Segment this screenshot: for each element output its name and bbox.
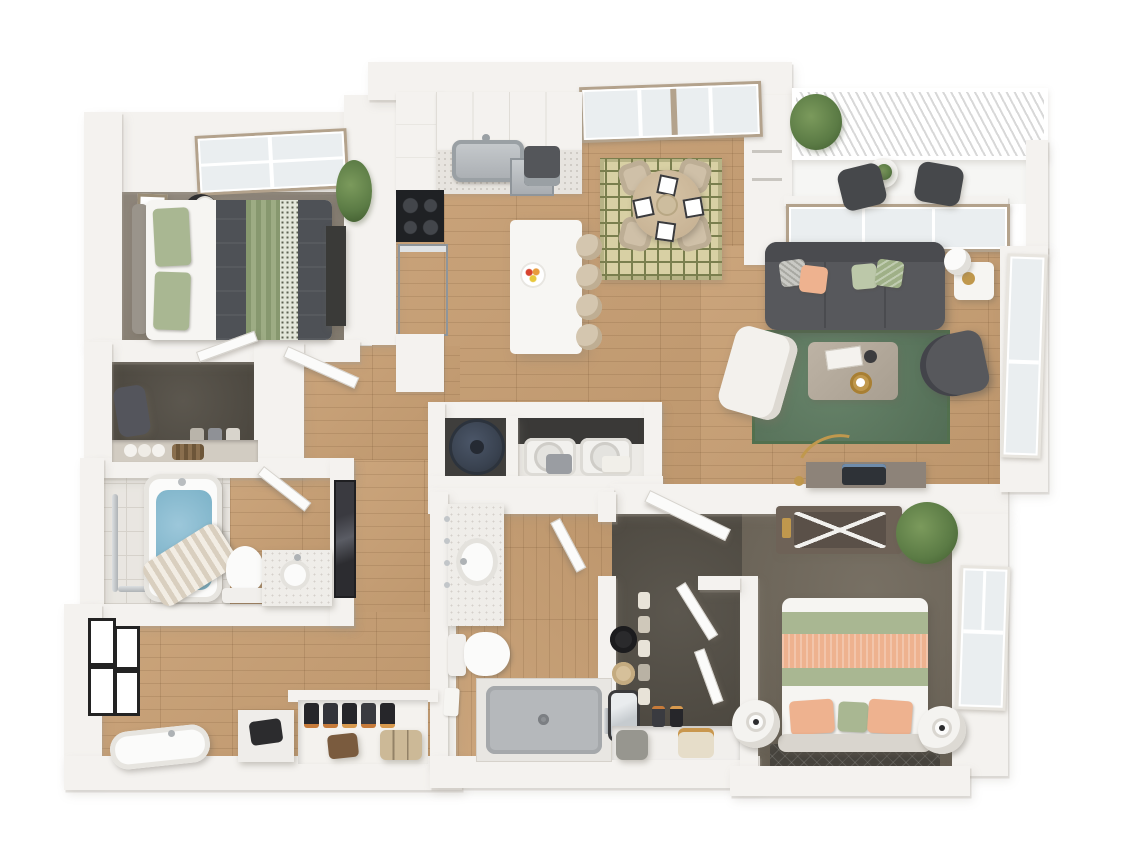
window-divider	[670, 89, 678, 135]
black-hat	[610, 626, 637, 653]
bedroom1-plant	[336, 160, 372, 222]
sofa-pillow-sage	[851, 263, 878, 290]
entry-suitcase	[380, 730, 422, 760]
place-setting-n	[656, 174, 679, 197]
toilet1-bowl	[226, 546, 264, 592]
gallery-frame-2	[114, 626, 140, 670]
toilet2-bowl	[464, 632, 510, 676]
bathroom1-west-wall	[80, 458, 104, 626]
bar-stool-4	[576, 324, 602, 350]
entry-leather-bag	[327, 732, 359, 759]
cabinet-seam-2	[752, 178, 782, 181]
bedroom2-south-wall	[730, 766, 970, 796]
bathroom2-west-wall	[430, 492, 448, 764]
closet2-north-stub	[698, 576, 740, 590]
coffee-maker	[524, 146, 560, 186]
bedroom2-window-glass	[959, 568, 1008, 707]
sofa-pillow-peach	[798, 264, 828, 294]
hanging-plant	[790, 94, 842, 150]
vanity2-faucet	[460, 558, 467, 565]
kitchen-island	[510, 220, 582, 354]
tan-hat	[612, 662, 635, 685]
entry-shoe-1	[304, 703, 319, 728]
water-heater-cap	[470, 440, 484, 454]
bar-stool-1	[576, 234, 602, 260]
gallery-frame-4	[114, 670, 140, 716]
living-east-window	[1000, 253, 1047, 458]
closet2-hamper	[616, 730, 648, 760]
floor-plan-3d	[0, 0, 1125, 844]
kitchen-window-glass	[582, 84, 760, 140]
closet2-shoe-e	[638, 688, 650, 705]
place-setting-w	[632, 196, 655, 219]
kitchen-window	[579, 81, 763, 143]
bedroom1-dresser	[326, 226, 346, 326]
wall-hook-2	[444, 538, 450, 544]
tub-faucet	[178, 478, 186, 486]
luggage-rack	[794, 512, 886, 548]
closet1-basket	[172, 444, 204, 460]
closet2-shoe-f	[652, 706, 665, 727]
window-mullion	[638, 90, 644, 136]
closet1-west-wall	[84, 342, 112, 472]
sofa-pillow-leaf	[874, 258, 904, 288]
kitchen-base-cabinet	[396, 334, 444, 392]
bathroom2-east-wall-a	[598, 492, 616, 522]
grab-bar-vertical	[112, 494, 118, 592]
bed2-peach-runner	[782, 634, 928, 668]
wall-hook-3	[444, 560, 450, 566]
vanity1-faucet	[294, 554, 301, 561]
gallery-frame-3	[88, 666, 116, 716]
vanity1-sink	[280, 560, 310, 590]
window-mullion	[1009, 359, 1039, 364]
entry-shoe-3	[342, 703, 357, 728]
closet2-shoe-b	[638, 616, 650, 633]
utility-top-wall	[428, 402, 662, 418]
fruit-plate	[520, 262, 546, 288]
bed2-sage-band-top	[782, 612, 928, 634]
closet1-towel-3	[152, 444, 165, 457]
bar-stool-2	[576, 264, 602, 290]
lamp-left-finial	[753, 719, 759, 725]
bed2-sage-band-bottom	[782, 668, 928, 686]
entry-shoe-4	[361, 703, 376, 728]
closet2-shoe-c	[638, 640, 650, 657]
bedroom2-headboard	[778, 734, 932, 752]
shower-drain	[538, 714, 549, 725]
bistro-chair-right	[913, 160, 965, 207]
dining-centerpiece	[658, 196, 676, 214]
bedroom1-throw-stripe	[246, 200, 280, 340]
closet2-shoe-a	[638, 592, 650, 609]
place-setting-e	[682, 196, 704, 218]
window-mullion	[963, 629, 1003, 634]
vintage-machine	[248, 718, 283, 746]
vase	[864, 350, 877, 363]
laundry-basket	[546, 454, 572, 474]
closet2-tote-bag	[678, 728, 714, 758]
gold-bowl	[962, 272, 975, 285]
arc-lamp-base	[794, 476, 804, 486]
closet1-towel-2	[138, 444, 151, 457]
palm-plant	[896, 502, 958, 564]
wall-hook-1	[444, 516, 450, 522]
wall-oven	[398, 244, 448, 336]
gold-decor	[782, 518, 791, 538]
bath2-towel	[443, 688, 459, 717]
bedroom1-west-wall	[84, 112, 122, 348]
sphere-lamp	[944, 248, 971, 275]
living-east-window-glass	[1004, 256, 1045, 455]
bathroom1-south-wall	[84, 604, 354, 626]
lamp-right-finial	[939, 725, 945, 731]
closet2-shoe-g	[670, 706, 683, 727]
bedroom1-window	[195, 128, 350, 196]
closet1-towel-1	[124, 444, 137, 457]
cooktop	[396, 190, 444, 242]
bedroom1-window-glass	[198, 131, 347, 193]
window-mullion	[708, 88, 714, 134]
entry-shoe-5	[380, 703, 395, 728]
kitchen-faucet	[482, 134, 490, 142]
window-mullion	[982, 571, 987, 630]
place-setting-s	[655, 221, 676, 242]
cabinet-seam-1	[752, 150, 782, 153]
wall-hook-4	[444, 582, 450, 588]
balcony-east-wall	[1026, 140, 1048, 252]
entry-shoe-2	[323, 703, 338, 728]
hallway-mirror	[334, 480, 356, 598]
folded-towels	[602, 456, 630, 472]
bedroom1-throw-checker	[280, 200, 298, 340]
bed2-pillow-right	[867, 699, 913, 736]
bedroom2-window	[956, 565, 1011, 711]
laptop	[842, 464, 886, 485]
entry-tub-faucet	[168, 730, 175, 737]
closet2-shoe-d	[638, 664, 650, 681]
coffee-cup	[856, 378, 865, 387]
bedroom1-pillow-bottom	[153, 271, 191, 330]
gallery-frame-1	[88, 618, 116, 666]
bed2-pillow-left	[789, 699, 835, 736]
utility-divider-wall	[506, 416, 518, 478]
bed2-pillow-center	[837, 701, 869, 733]
bar-stool-3	[576, 294, 602, 320]
bedroom1-pillow-top	[153, 207, 192, 267]
